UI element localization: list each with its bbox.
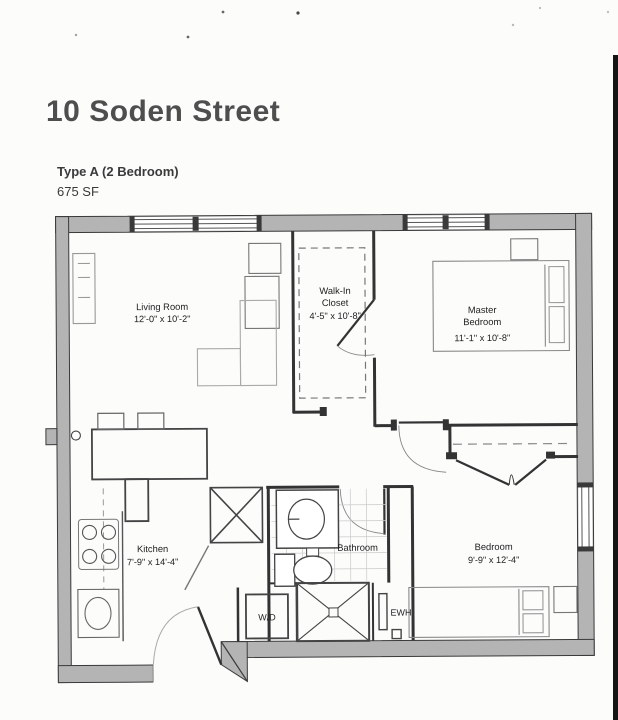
svg-text:Master: Master (468, 304, 497, 315)
svg-text:W/D: W/D (258, 612, 276, 622)
svg-text:7'-9" x 14'-4": 7'-9" x 14'-4" (127, 557, 178, 567)
door-master-bedroom (399, 422, 446, 472)
window-bedroom (577, 482, 593, 551)
door-bathroom (340, 489, 384, 535)
svg-text:12'-0" x 10'-2": 12'-0" x 10'-2" (134, 314, 191, 324)
floor-plan-drawing: Living Room 12'-0" x 10'-2" Walk-In Clos… (0, 0, 618, 720)
bedroom-bed (409, 586, 577, 637)
window-master-bedroom (403, 214, 490, 231)
bathroom-vanity (276, 490, 338, 556)
svg-text:Bedroom: Bedroom (463, 316, 501, 327)
water-heater-label: EWH (390, 607, 411, 617)
master-bedroom-label: Master Bedroom 11'-1" x 10'-8" (454, 304, 510, 343)
svg-text:11'-1" x 10'-8": 11'-1" x 10'-8" (454, 333, 510, 343)
living-room-label: Living Room 12'-0" x 10'-2" (134, 301, 191, 324)
door-pantry (185, 546, 209, 590)
bathroom-toilet (275, 554, 332, 586)
wall-fixture-circle (71, 431, 80, 440)
kitchen-label: Kitchen 7'-9" x 14'-4" (127, 543, 179, 567)
svg-text:4'-5" x 10'-8": 4'-5" x 10'-8" (309, 311, 360, 321)
door-entry (153, 607, 221, 683)
door-bedroom-closet-double (453, 443, 572, 485)
laundry-label: W/D (258, 612, 276, 622)
bathroom-fixtures (271, 489, 387, 587)
bathroom-label: Bathroom (337, 542, 378, 553)
scan-artifacts (75, 7, 618, 720)
walk-in-closet-label: Walk-In Closet 4'-5" x 10'-8" (309, 285, 361, 321)
svg-text:Walk-In: Walk-In (319, 285, 351, 296)
svg-text:Kitchen: Kitchen (137, 543, 168, 554)
svg-text:9'-9" x 12'-4": 9'-9" x 12'-4" (468, 555, 519, 565)
kitchen-fixtures (77, 413, 208, 642)
svg-text:EWH: EWH (390, 607, 411, 617)
exterior-walls (45, 213, 595, 682)
svg-text:Bathroom: Bathroom (337, 542, 378, 553)
shower (297, 583, 369, 641)
window-living-room (130, 215, 262, 232)
door-walk-in-closet (337, 300, 374, 356)
svg-text:Living Room: Living Room (136, 301, 188, 312)
bedroom-label: Bedroom 9'-9" x 12'-4" (468, 541, 520, 565)
pantry-closet (210, 487, 262, 542)
svg-text:Closet: Closet (322, 297, 349, 308)
svg-text:Bedroom: Bedroom (475, 541, 513, 552)
floor-plan-sheet: 10 Soden Street Type A (2 Bedroom) 675 S… (0, 0, 618, 720)
